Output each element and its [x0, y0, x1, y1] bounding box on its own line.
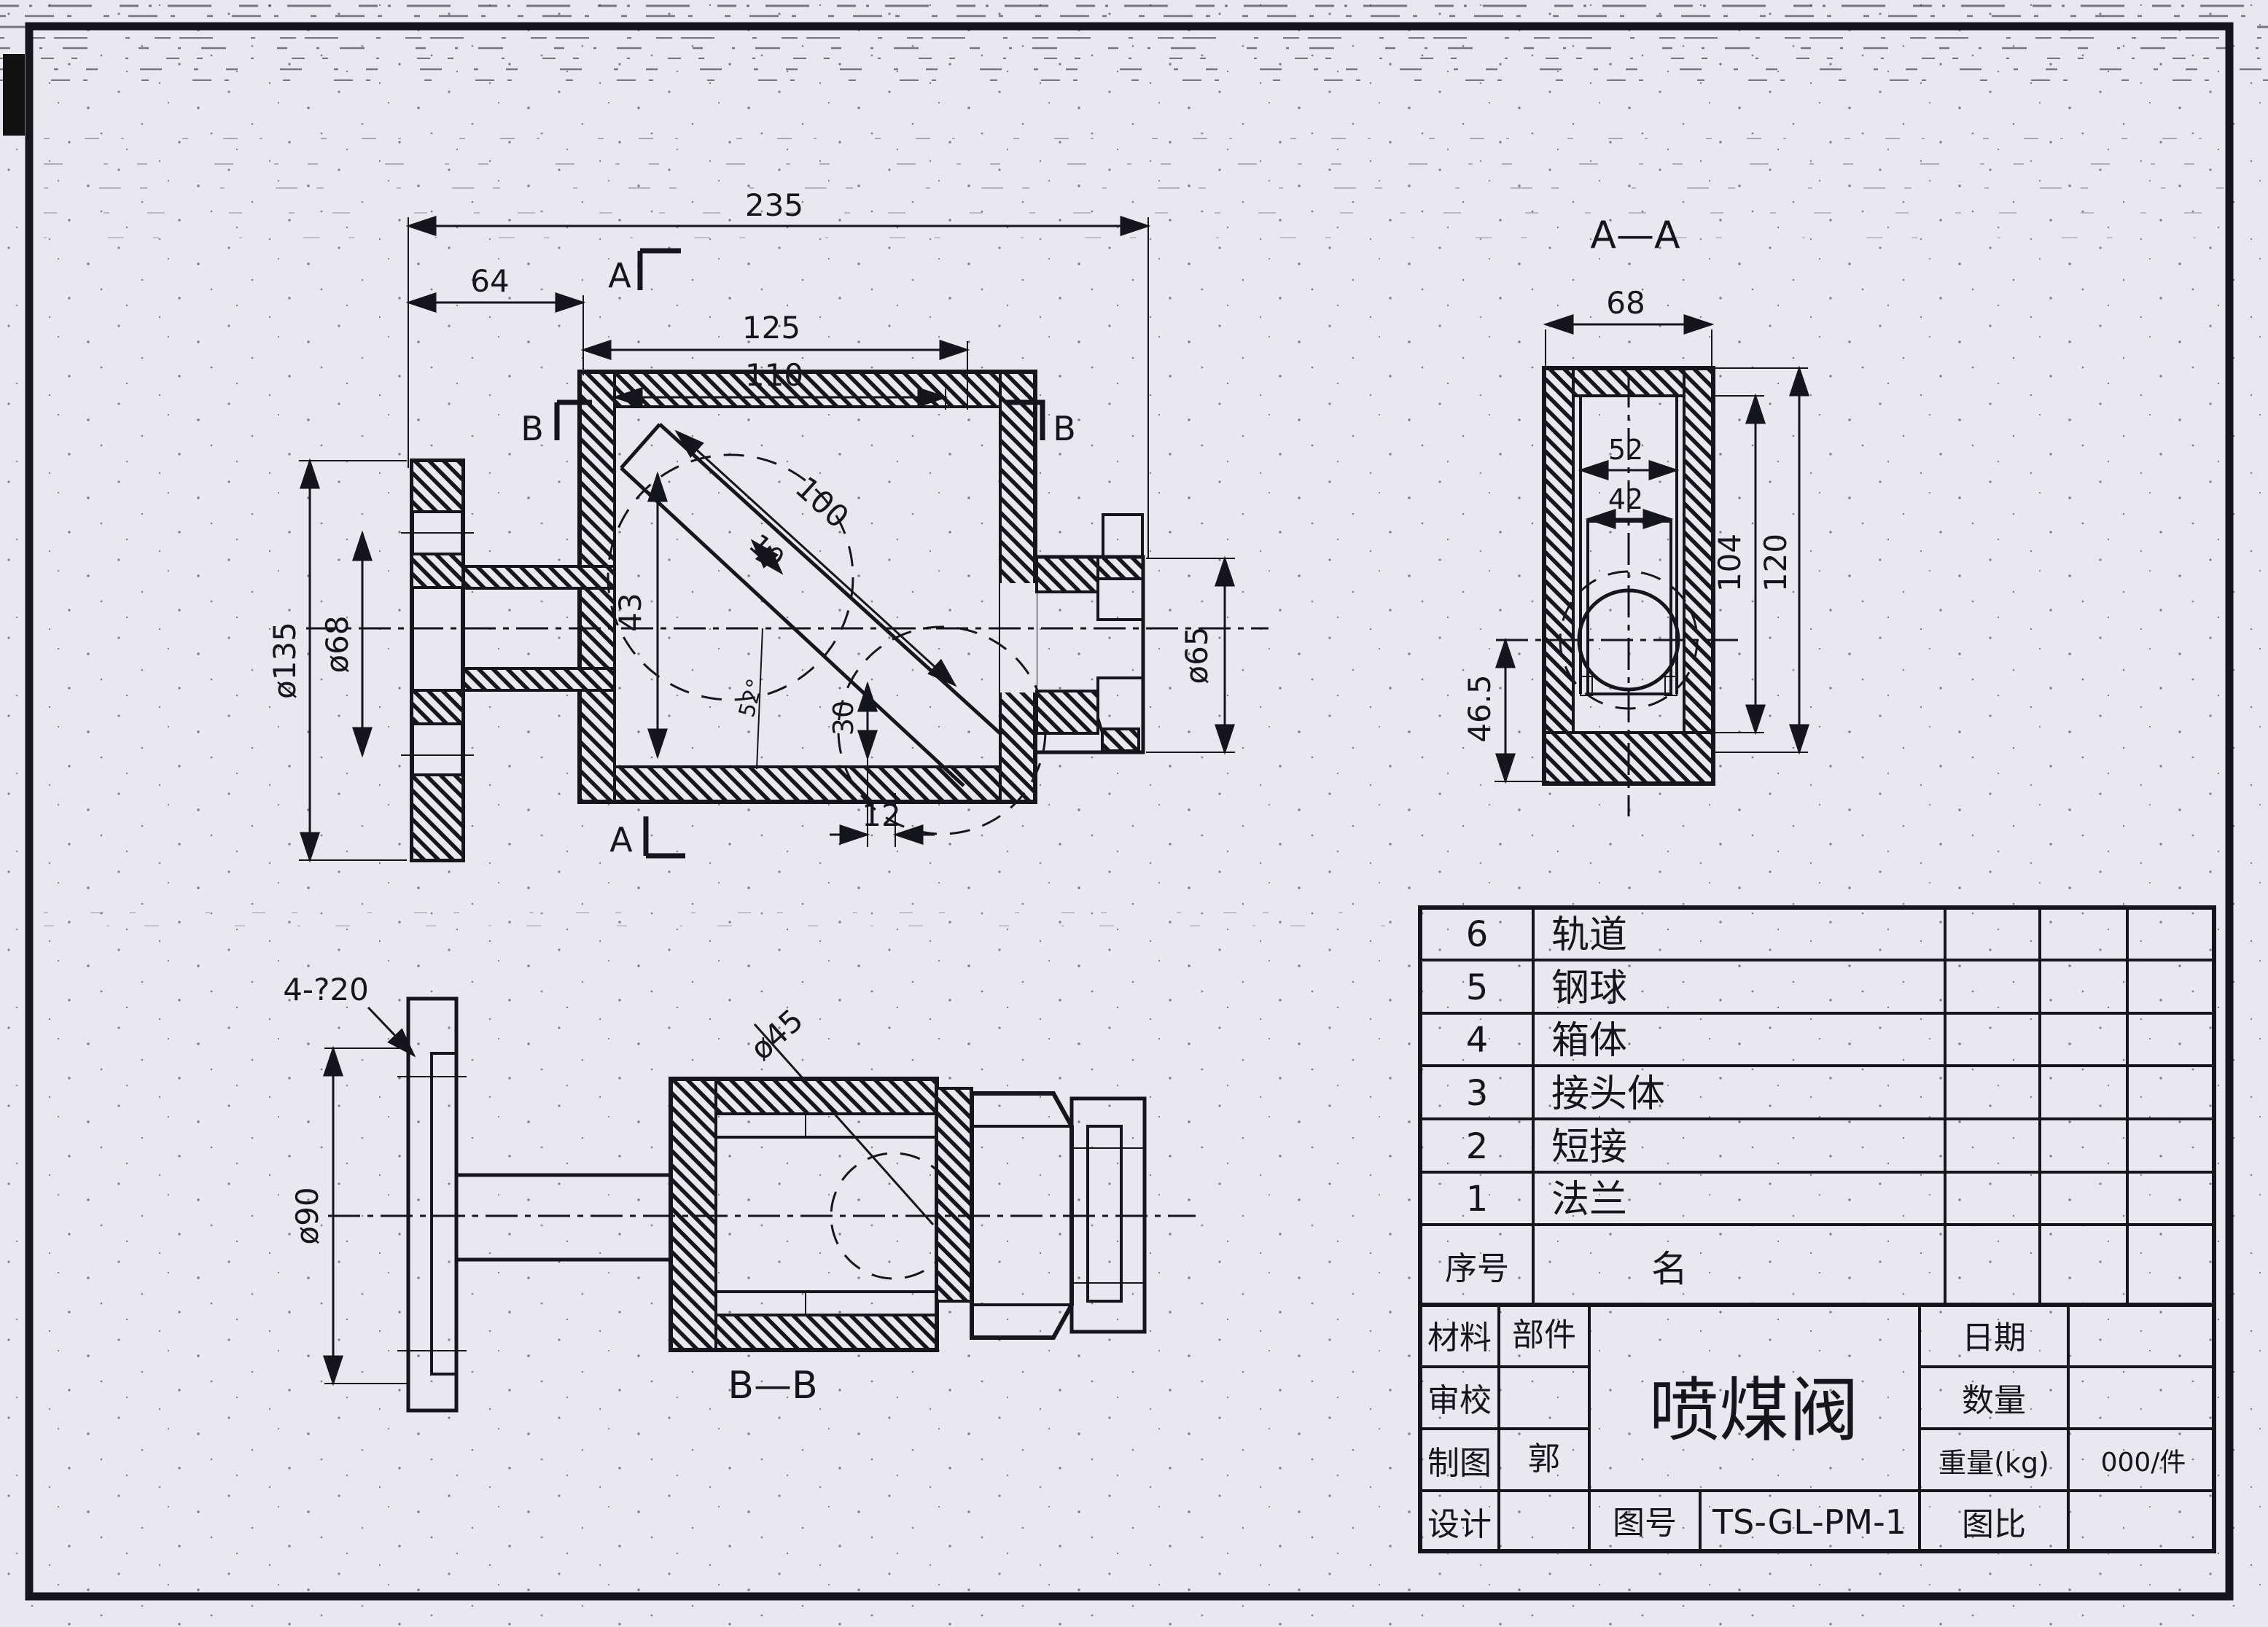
value-draft-by: 郭 — [1528, 1440, 1560, 1478]
label-date: 日期 — [1962, 1319, 2026, 1357]
scan-edge-artifact — [3, 54, 25, 136]
label-drawing-no: 图号 — [1613, 1505, 1677, 1542]
bb-view-label: B—B — [728, 1364, 817, 1408]
value-weight: 000/件 — [2101, 1448, 2186, 1478]
label-weight: 重量(kg) — [1938, 1447, 2049, 1479]
dim-235: 235 — [745, 187, 803, 223]
dim-43: 43 — [612, 593, 648, 631]
part-name-1: 法兰 — [1551, 1178, 1627, 1222]
parts-header-no: 序号 — [1445, 1250, 1509, 1287]
part-no-4: 4 — [1466, 1020, 1489, 1061]
dim-d135: ø135 — [267, 622, 303, 699]
part-name-6: 轨道 — [1551, 913, 1627, 957]
dim-64: 64 — [470, 263, 509, 299]
part-no-1: 1 — [1466, 1179, 1489, 1220]
dim-d68: ø68 — [319, 615, 355, 673]
section-marker-b-left: B — [521, 409, 544, 448]
dim-d65: ø65 — [1179, 626, 1215, 684]
drawing-title: 喷煤阀 — [1649, 1370, 1859, 1451]
aa-dim-120: 120 — [1758, 534, 1793, 592]
part-name-4: 箱体 — [1551, 1019, 1627, 1063]
part-name-2: 短接 — [1551, 1125, 1627, 1169]
aa-dim-104: 104 — [1712, 534, 1747, 592]
part-no-3: 3 — [1466, 1073, 1489, 1114]
label-scale: 图比 — [1962, 1506, 2026, 1543]
part-no-5: 5 — [1466, 967, 1489, 1008]
dim-12: 12 — [862, 797, 900, 833]
aa-dim-52: 52 — [1608, 434, 1643, 466]
part-no-6: 6 — [1466, 914, 1489, 955]
bb-dim-d90: ø90 — [289, 1187, 325, 1244]
label-design: 设计 — [1427, 1506, 1492, 1543]
section-marker-a-top: A — [608, 256, 631, 295]
dim-110: 110 — [745, 357, 803, 393]
label-material: 材料 — [1427, 1319, 1492, 1357]
aa-dim-46-5: 46.5 — [1462, 674, 1497, 743]
label-part: 部件 — [1512, 1316, 1576, 1354]
dim-125: 125 — [742, 310, 800, 346]
label-draft: 制图 — [1427, 1445, 1492, 1482]
dim-30: 30 — [827, 701, 860, 736]
part-name-5: 钢球 — [1551, 967, 1627, 1010]
section-marker-a-bottom: A — [609, 820, 633, 859]
parts-header-name: 名 — [1651, 1248, 1688, 1290]
bb-dim-4x20: 4-?20 — [283, 972, 369, 1007]
label-check: 审校 — [1427, 1382, 1492, 1419]
blueprint-canvas: 235 64 125 110 ø135 ø68 ø65 100 10 43 30… — [0, 0, 2268, 1627]
part-name-3: 接头体 — [1551, 1072, 1665, 1116]
aa-dim-42: 42 — [1608, 483, 1643, 515]
aa-view-label: A—A — [1590, 214, 1680, 257]
part-no-2: 2 — [1466, 1126, 1489, 1167]
section-marker-b-right: B — [1053, 409, 1076, 448]
aa-dim-68: 68 — [1606, 285, 1645, 321]
label-qty: 数量 — [1962, 1382, 2026, 1419]
drawing-sheet: 235 64 125 110 ø135 ø68 ø65 100 10 43 30… — [0, 0, 2268, 1627]
value-drawing-no: TS-GL-PM-1 — [1712, 1502, 1906, 1542]
